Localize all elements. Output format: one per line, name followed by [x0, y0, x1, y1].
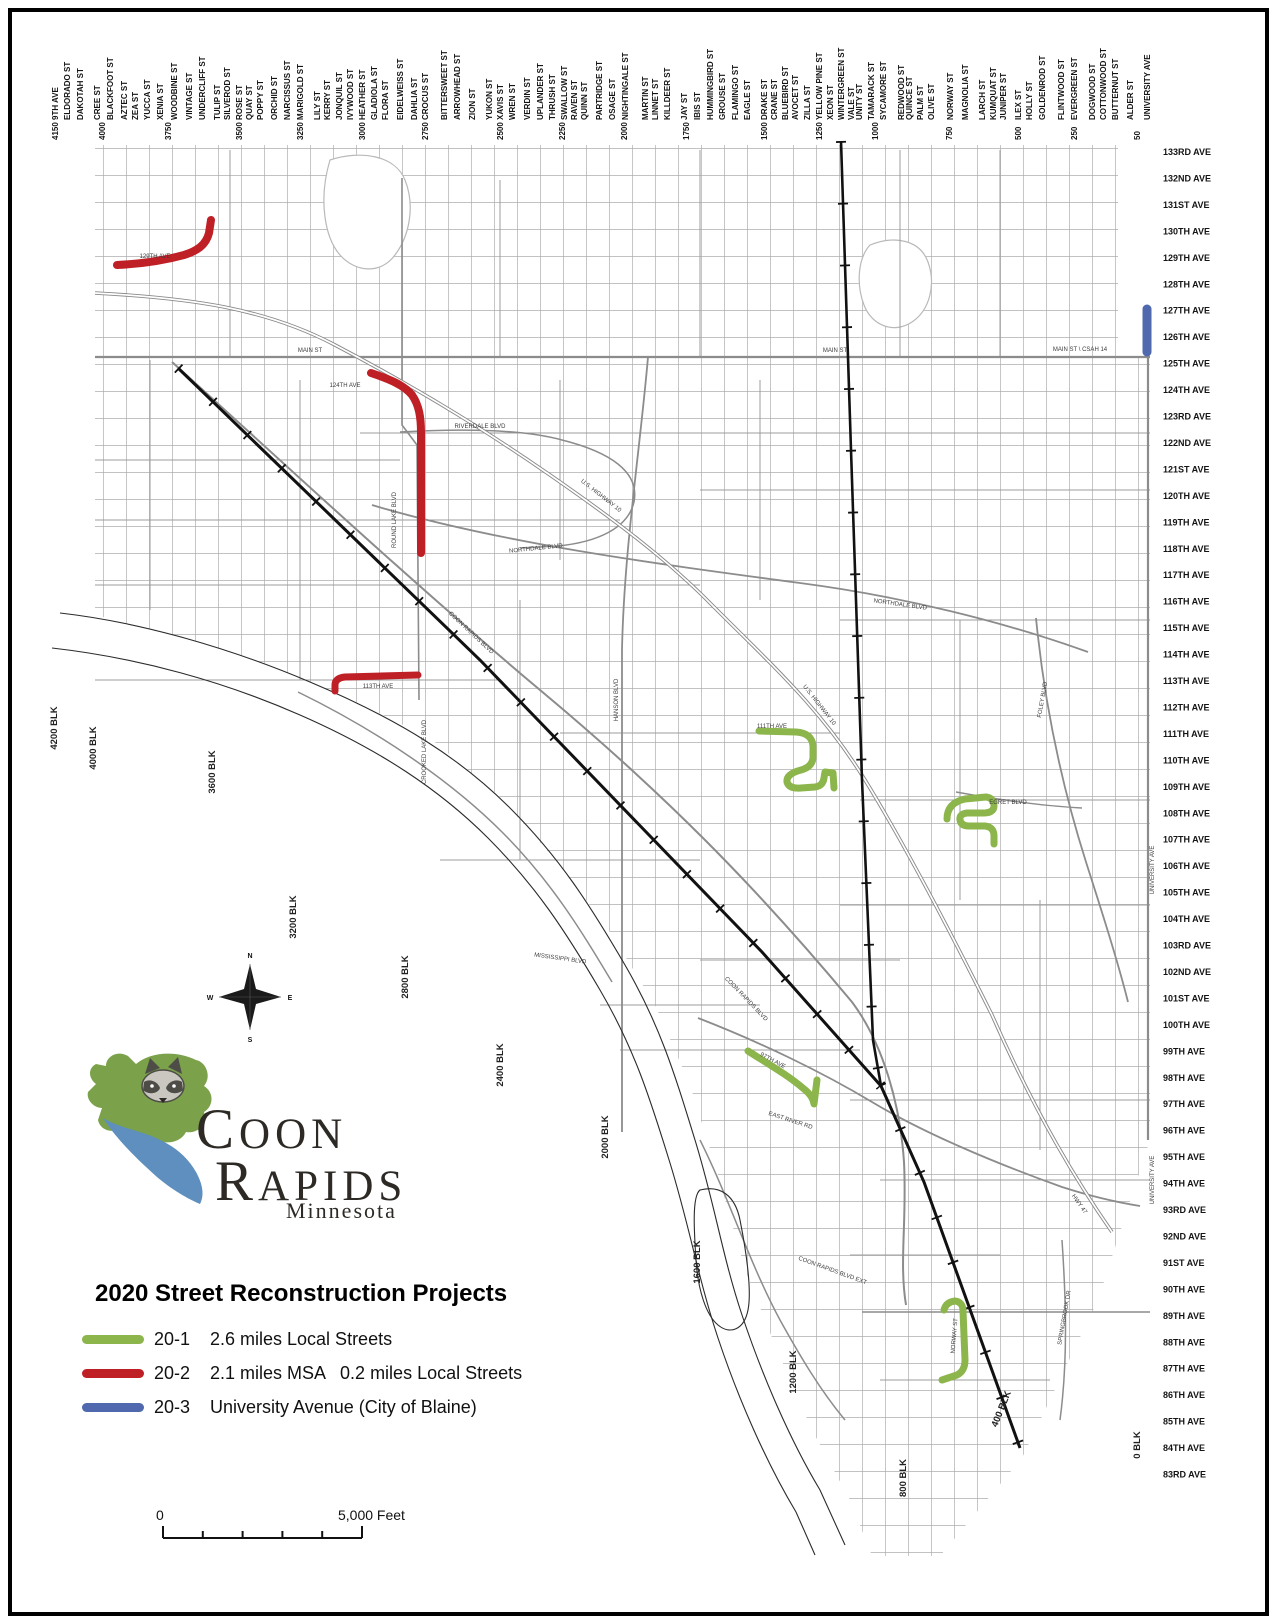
legend-item: 20-3University Avenue (City of Blaine) — [82, 1390, 522, 1424]
road-name-label: MAIN ST \ CSAH 14 — [1053, 347, 1108, 353]
top-street-label: XAVIS ST — [496, 84, 505, 120]
block-label: 2800 BLK — [400, 955, 411, 998]
avenue-label: 122ND AVE — [1163, 438, 1211, 448]
top-street-label: GLADIOLA ST — [370, 66, 379, 120]
top-street-label: UNIVERSITY AVE — [1143, 54, 1152, 120]
top-street-label: NORWAY ST — [946, 72, 955, 120]
avenue-label: 108TH AVE — [1163, 808, 1210, 818]
top-block-number: 750 — [945, 126, 954, 140]
top-street-label: MAGNOLIA ST — [961, 64, 970, 120]
avenue-label: 83RD AVE — [1163, 1470, 1206, 1480]
avenue-label: 124TH AVE — [1163, 385, 1210, 395]
top-street-label: XEON ST — [826, 85, 835, 120]
top-street-label: ZION ST — [468, 88, 477, 120]
avenue-label: 113TH AVE — [1163, 676, 1210, 686]
top-street-label: JONQUIL ST — [335, 72, 344, 120]
top-street-label: JAY ST — [680, 93, 689, 120]
avenue-label: 85TH AVE — [1163, 1417, 1205, 1427]
avenue-label: 88TH AVE — [1163, 1337, 1205, 1347]
scalebar-distance-label: 5,000 Feet — [338, 1507, 405, 1523]
road-name-label: HANSON BLVD — [614, 678, 620, 721]
legend-item: 20-12.6 miles Local Streets — [82, 1322, 522, 1356]
avenue-label: 98TH AVE — [1163, 1073, 1205, 1083]
road-name-label: MISSISSIPPI BLVD — [534, 952, 588, 965]
top-street-label: GROUSE ST — [718, 73, 727, 120]
avenue-label: 130TH AVE — [1163, 226, 1210, 236]
avenue-label: 110TH AVE — [1163, 755, 1210, 765]
top-street-label: LINNET ST — [651, 79, 660, 120]
top-block-number: 50 — [1133, 131, 1142, 140]
top-street-label: WINTERGREEN ST — [837, 47, 846, 120]
legend: 20-12.6 miles Local Streets20-22.1 miles… — [82, 1322, 522, 1424]
avenue-label: 118TH AVE — [1163, 544, 1210, 554]
top-street-label: VINTAGE ST — [185, 72, 194, 120]
top-street-label: IBIS ST — [693, 92, 702, 120]
top-street-labels: 9TH AVEELDORADO STDAKOTAH STCREE STBLACK… — [51, 47, 1152, 120]
coon-rapids-map-page: 9TH AVEELDORADO STDAKOTAH STCREE STBLACK… — [0, 0, 1277, 1624]
top-street-label: SYCAMORE ST — [879, 61, 888, 120]
top-street-label: AVOCET ST — [791, 75, 800, 120]
top-block-number: 1000 — [871, 122, 880, 140]
top-street-label: ROSE ST — [235, 85, 244, 120]
avenue-label: 132ND AVE — [1163, 173, 1211, 183]
top-street-label: BITTERSWEET ST — [440, 50, 449, 120]
top-block-number: 1250 — [815, 122, 824, 140]
top-street-label: QUAY ST — [245, 85, 254, 120]
top-street-label: FLAMINGO ST — [731, 65, 740, 120]
road-name-label: CROOKED LAKE BLVD — [422, 719, 428, 784]
road-name-label: UNIVERSITY AVE — [1150, 1156, 1156, 1205]
top-street-label: ZEA ST — [131, 92, 140, 120]
legend-swatch-20-2 — [82, 1369, 144, 1378]
top-street-label: THRUSH ST — [548, 74, 557, 120]
road-name-label: RIVERDALE BLVD — [455, 424, 507, 430]
scalebar-zero-label: 0 — [156, 1507, 164, 1523]
road-name-label: MAIN ST — [298, 348, 323, 354]
top-street-label: NIGHTINGALE ST — [621, 52, 630, 120]
top-street-label: KUMQUAT ST — [989, 67, 998, 120]
top-street-label: WREN ST — [508, 83, 517, 120]
avenue-label: 95TH AVE — [1163, 1152, 1205, 1162]
top-street-label: POPPY ST — [256, 80, 265, 120]
legend-swatch-20-1 — [82, 1335, 144, 1344]
compass-letter: E — [288, 995, 293, 1002]
avenue-label: 106TH AVE — [1163, 861, 1210, 871]
avenue-label: 115TH AVE — [1163, 623, 1210, 633]
top-street-label: ALDER ST — [1126, 80, 1135, 120]
top-street-label: LARCH ST — [978, 79, 987, 120]
avenue-label: 121ST AVE — [1163, 464, 1210, 474]
top-street-label: SWALLOW ST — [560, 66, 569, 120]
top-street-label: OLIVE ST — [927, 83, 936, 120]
top-street-label: TAMARACK ST — [867, 62, 876, 120]
legend-item-desc: 2.6 miles Local Streets — [210, 1329, 392, 1350]
top-street-label: YUKON ST — [485, 79, 494, 120]
top-street-label: HOLLY ST — [1025, 81, 1034, 120]
block-label: 1200 BLK — [788, 1350, 799, 1393]
avenue-label: 89TH AVE — [1163, 1311, 1205, 1321]
road-name-label: 129TH AVE — [140, 254, 171, 260]
avenue-label: 84TH AVE — [1163, 1443, 1205, 1453]
block-label: 1600 BLK — [692, 1240, 703, 1283]
block-label: 2400 BLK — [495, 1043, 506, 1086]
avenue-label: 116TH AVE — [1163, 597, 1210, 607]
top-street-label: QUINCE ST — [905, 76, 914, 120]
top-block-number: 2250 — [558, 122, 567, 140]
legend-item-desc: 2.1 miles MSA 0.2 miles Local Streets — [210, 1363, 522, 1384]
top-street-label: OSAGE ST — [608, 79, 617, 120]
block-label: 3600 BLK — [207, 750, 218, 793]
avenue-label: 96TH AVE — [1163, 1126, 1205, 1136]
top-street-label: MARTIN ST — [641, 76, 650, 120]
city-logo-graphic — [88, 1054, 212, 1204]
avenue-label: 105TH AVE — [1163, 888, 1210, 898]
avenue-label: 114TH AVE — [1163, 650, 1210, 660]
top-block-number: 4150 — [51, 122, 60, 140]
top-street-label: KERRY ST — [323, 80, 332, 120]
scale-bar — [163, 1526, 362, 1538]
top-block-number: 4000 — [98, 122, 107, 140]
legend-swatch-20-3 — [82, 1403, 144, 1412]
avenue-label: 112TH AVE — [1163, 702, 1210, 712]
legend-title: 2020 Street Reconstruction Projects — [95, 1280, 507, 1308]
avenue-label: 99TH AVE — [1163, 1046, 1205, 1056]
top-street-label: EAGLE ST — [743, 80, 752, 120]
avenue-label: 93RD AVE — [1163, 1205, 1206, 1215]
top-block-number: 250 — [1070, 126, 1079, 140]
avenue-label: 109TH AVE — [1163, 782, 1210, 792]
top-street-label: PARTRIDGE ST — [595, 61, 604, 120]
block-label: 800 BLK — [898, 1459, 909, 1497]
legend-item-id: 20-2 — [154, 1363, 210, 1384]
top-street-label: XENIA ST — [156, 83, 165, 120]
avenue-label: 125TH AVE — [1163, 359, 1210, 369]
avenue-label: 90TH AVE — [1163, 1284, 1205, 1294]
top-street-label: ILEX ST — [1014, 90, 1023, 120]
top-street-label: YELLOW PINE ST — [815, 52, 824, 120]
avenue-label: 87TH AVE — [1163, 1364, 1205, 1374]
top-block-number: 3250 — [296, 122, 305, 140]
avenue-label: 94TH AVE — [1163, 1179, 1205, 1189]
top-street-label: YUCCA ST — [143, 79, 152, 120]
top-street-label: HEATHER ST — [358, 69, 367, 120]
block-label: 4000 BLK — [88, 726, 99, 769]
lake-outline — [859, 240, 931, 328]
top-street-label: BLACKFOOT ST — [106, 57, 115, 120]
right-avenue-labels: 133RD AVE132ND AVE131ST AVE130TH AVE129T… — [1163, 147, 1211, 1480]
top-block-number: 1750 — [682, 122, 691, 140]
avenue-label: 86TH AVE — [1163, 1390, 1205, 1400]
top-street-label: UNDERCLIFF ST — [198, 56, 207, 120]
top-block-number: 3500 — [235, 122, 244, 140]
block-label: 4200 BLK — [49, 706, 60, 749]
top-block-number: 1500 — [760, 122, 769, 140]
top-street-label: CREE ST — [93, 85, 102, 120]
top-street-label: PALM ST — [916, 85, 925, 120]
top-street-label: FLORA ST — [381, 80, 390, 120]
top-block-numbers: 4150400037503500325030002750250022502000… — [51, 122, 1142, 140]
top-street-label: RAVEN ST — [570, 80, 579, 120]
avenue-label: 101ST AVE — [1163, 993, 1210, 1003]
avenue-label: 103RD AVE — [1163, 941, 1211, 951]
top-street-label: GOLDENROD ST — [1038, 55, 1047, 120]
top-street-label: JUNIPER ST — [999, 73, 1008, 120]
top-street-label: QUINN ST — [580, 82, 589, 120]
avenue-label: 100TH AVE — [1163, 1020, 1210, 1030]
avenue-label: 126TH AVE — [1163, 332, 1210, 342]
compass-rose: NESW — [207, 953, 293, 1044]
top-block-number: 2750 — [421, 122, 430, 140]
top-street-label: UNITY ST — [855, 84, 864, 120]
top-street-label: EVERGREEN ST — [1070, 57, 1079, 120]
avenue-label: 111TH AVE — [1163, 729, 1209, 739]
top-street-label: ELDORADO ST — [63, 62, 72, 120]
top-street-label: DAHLIA ST — [410, 78, 419, 120]
top-street-label: ORCHID ST — [270, 76, 279, 120]
avenue-label: 133RD AVE — [1163, 147, 1211, 157]
top-street-label: FLINTWOOD ST — [1057, 59, 1066, 120]
road-name-label: ROUND LAKE BLVD — [392, 491, 398, 548]
top-street-label: UPLANDER ST — [536, 63, 545, 120]
road-name-label: 113TH AVE — [363, 684, 393, 690]
top-block-number: 3000 — [358, 122, 367, 140]
avenue-label: 107TH AVE — [1163, 835, 1210, 845]
top-block-number: 3750 — [164, 122, 173, 140]
top-street-label: BUTTERNUT ST — [1111, 59, 1120, 120]
top-street-label: ARROWHEAD ST — [453, 54, 462, 120]
logo-state-name: Minnesota — [286, 1200, 397, 1222]
road-name-label: 124TH AVE — [330, 383, 361, 389]
avenue-label: 92ND AVE — [1163, 1232, 1206, 1242]
legend-item-id: 20-3 — [154, 1397, 210, 1418]
top-street-label: TULIP ST — [213, 84, 222, 120]
compass-letter: S — [248, 1037, 253, 1044]
block-label: 2000 BLK — [600, 1115, 611, 1158]
legend-item: 20-22.1 miles MSA 0.2 miles Local Street… — [82, 1356, 522, 1390]
avenue-label: 119TH AVE — [1163, 517, 1210, 527]
avenue-label: 131ST AVE — [1163, 200, 1210, 210]
avenue-label: 117TH AVE — [1163, 570, 1210, 580]
top-street-label: COTTONWOOD ST — [1099, 48, 1108, 120]
top-street-label: DOGWOOD ST — [1088, 63, 1097, 120]
top-street-label: DAKOTAH ST — [76, 68, 85, 120]
top-street-label: MARIGOLD ST — [296, 64, 305, 120]
legend-item-id: 20-1 — [154, 1329, 210, 1350]
top-block-number: 500 — [1014, 126, 1023, 140]
top-street-label: VERDIN ST — [523, 77, 532, 120]
avenue-label: 120TH AVE — [1163, 491, 1210, 501]
legend-item-desc: University Avenue (City of Blaine) — [210, 1397, 477, 1418]
block-label: 3200 BLK — [288, 895, 299, 938]
top-street-label: BLUEBIRD ST — [781, 66, 790, 120]
block-label: 0 BLK — [1132, 1431, 1143, 1459]
top-street-label: SILVEROD ST — [223, 67, 232, 120]
top-street-label: ZILLA ST — [803, 85, 812, 120]
avenue-label: 128TH AVE — [1163, 279, 1210, 289]
top-street-label: NARCISSUS ST — [283, 60, 292, 120]
top-street-label: KILLDEER ST — [663, 67, 672, 120]
top-street-label: HUMMINGBIRD ST — [706, 49, 715, 120]
top-block-number: 2500 — [496, 122, 505, 140]
compass-letter: N — [247, 953, 252, 960]
road-name-label: UNIVERSITY AVE — [1150, 846, 1156, 895]
avenue-label: 129TH AVE — [1163, 253, 1210, 263]
compass-letter: W — [207, 995, 214, 1002]
avenue-label: 123RD AVE — [1163, 412, 1211, 422]
lake-outline — [324, 155, 410, 269]
top-street-label: WOODBINE ST — [170, 63, 179, 120]
road-name-label: EGRET BLVD — [989, 800, 1027, 806]
avenue-label: 104TH AVE — [1163, 914, 1210, 924]
avenue-label: 127TH AVE — [1163, 306, 1210, 316]
top-street-label: IVYWOOD ST — [346, 69, 355, 120]
top-street-label: 9TH AVE — [51, 86, 60, 120]
road-name-label: MAIN ST — [823, 348, 848, 354]
top-street-label: DRAKE ST — [760, 79, 769, 120]
avenue-label: 97TH AVE — [1163, 1099, 1205, 1109]
top-street-label: CROCUS ST — [421, 73, 430, 120]
avenue-label: 91ST AVE — [1163, 1258, 1205, 1268]
avenue-label: 102ND AVE — [1163, 967, 1211, 977]
top-block-number: 2000 — [620, 122, 629, 140]
road-name-label: 111TH AVE — [757, 724, 787, 730]
top-street-label: EIDELWEISS ST — [396, 59, 405, 120]
top-street-label: AZTEC ST — [120, 81, 129, 120]
top-street-label: LILY ST — [313, 91, 322, 120]
top-street-label: CRANE ST — [770, 79, 779, 120]
